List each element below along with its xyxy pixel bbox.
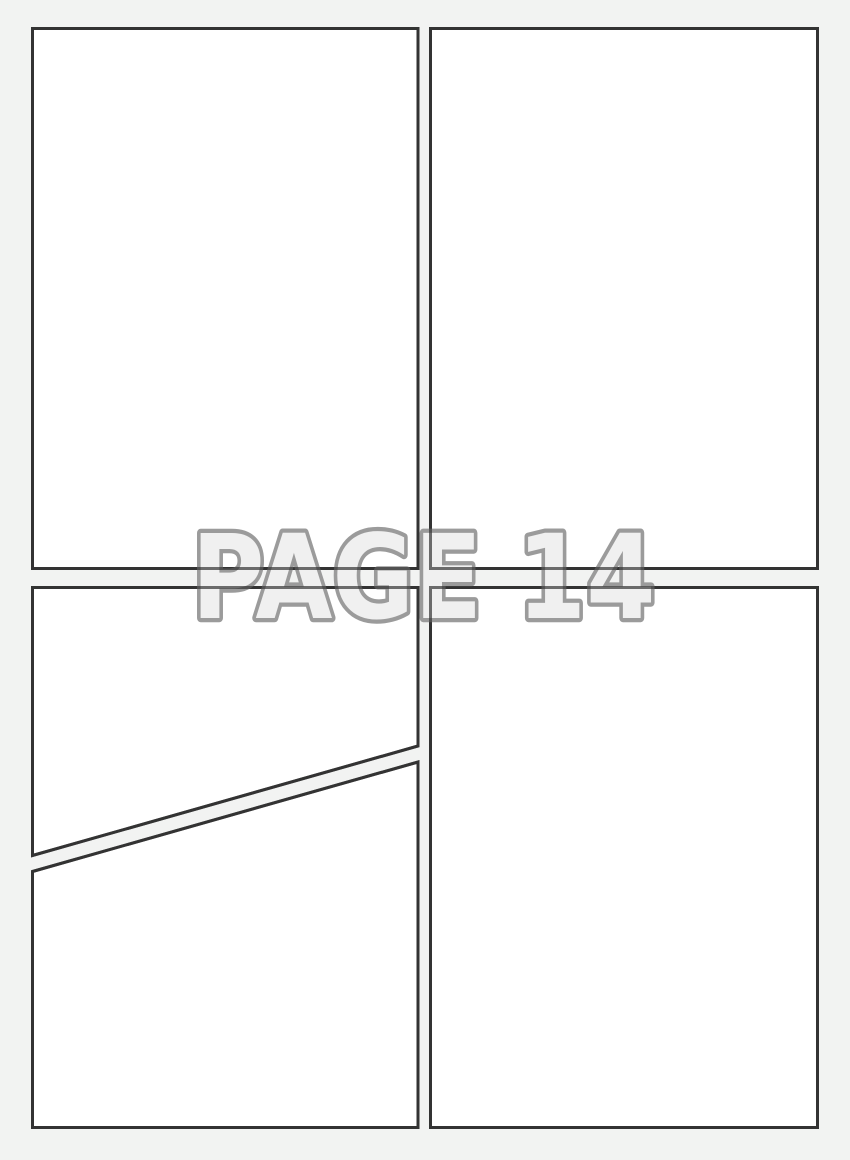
panel-top-right bbox=[431, 29, 818, 569]
comic-page-template: PAGE 14 bbox=[0, 0, 850, 1160]
page-number-label: PAGE 14 bbox=[192, 509, 656, 646]
panel-top-left bbox=[33, 29, 419, 569]
comic-page-canvas: PAGE 14 bbox=[0, 0, 850, 1160]
panel-bottom-right bbox=[431, 588, 818, 1128]
